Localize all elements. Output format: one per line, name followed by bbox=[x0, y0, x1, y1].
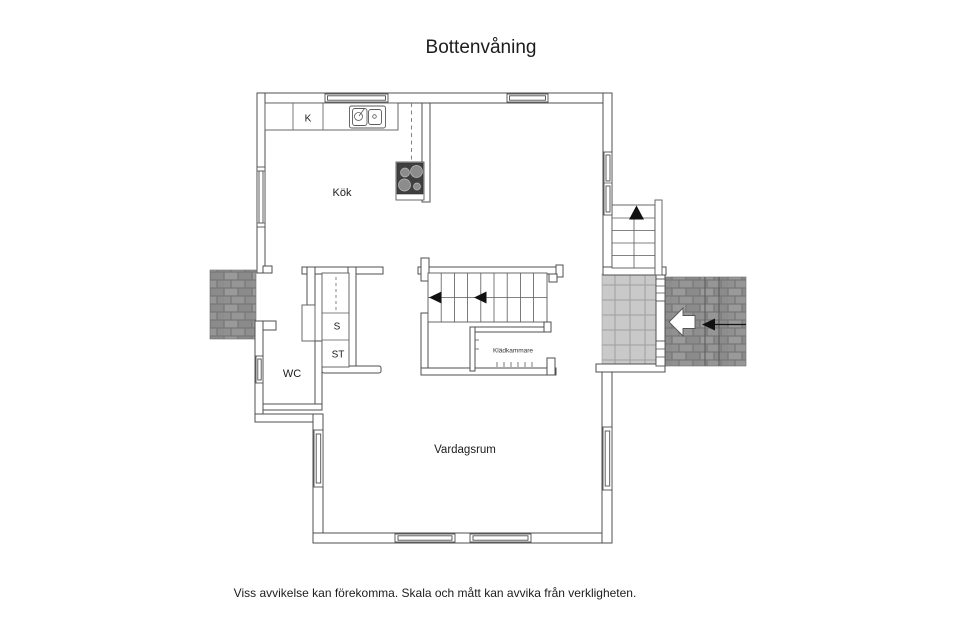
stove-icon bbox=[396, 162, 424, 200]
patio-left-bricks bbox=[210, 270, 256, 339]
floor-plan-drawing bbox=[0, 0, 960, 640]
wall-top bbox=[257, 93, 612, 103]
plan-title: Bottenvåning bbox=[426, 37, 537, 59]
wall-stairblock-bottom bbox=[421, 368, 556, 375]
wall-stair-tab-right bbox=[549, 274, 557, 282]
entry-porch-tiles bbox=[602, 274, 656, 364]
kladkammare-room bbox=[470, 322, 551, 371]
wall-entry-bottom bbox=[596, 364, 665, 372]
window-right-upper bbox=[604, 152, 612, 215]
wall-wc-left-tab bbox=[263, 321, 276, 330]
wall-bottom bbox=[313, 533, 612, 543]
room-label-kitchen: Kök bbox=[333, 187, 352, 199]
wall-kk-top bbox=[470, 327, 546, 332]
window-wc bbox=[256, 356, 263, 383]
window-bottom-left bbox=[395, 534, 455, 542]
room-label-fridge: K bbox=[305, 114, 312, 125]
window-livingroom-right bbox=[603, 427, 612, 490]
wall-closet-left bbox=[307, 267, 315, 305]
window-bottom-right bbox=[470, 534, 531, 542]
wall-kk-top-notch bbox=[544, 322, 551, 332]
floor-plan-page: Bottenvåning K Kök WC S ST Klädkammare V… bbox=[0, 0, 960, 640]
stair-railing bbox=[655, 200, 662, 275]
room-label-closet-s: S bbox=[334, 322, 341, 333]
wall-hall-tab bbox=[263, 266, 272, 273]
wall-stairblock-notch bbox=[547, 358, 555, 375]
window-top-hall bbox=[507, 94, 548, 102]
room-label-closet-st: ST bbox=[332, 350, 345, 361]
room-label-kladkammare: Klädkammare bbox=[493, 348, 533, 355]
wall-wc-right bbox=[315, 341, 322, 410]
window-entry-lower bbox=[656, 341, 665, 366]
kitchen-fixtures bbox=[265, 103, 424, 200]
sink-icon bbox=[350, 106, 386, 128]
room-label-wc: WC bbox=[283, 368, 301, 380]
staircase-main bbox=[428, 273, 547, 322]
window-top-kitchen bbox=[325, 94, 388, 102]
wall-wc-bottom bbox=[263, 404, 322, 410]
wc-door-leaf bbox=[302, 305, 315, 341]
wall-kk-left bbox=[470, 327, 475, 371]
window-kitchen-left bbox=[257, 167, 265, 227]
room-label-livingroom: Vardagsrum bbox=[434, 444, 496, 456]
disclaimer-text: Viss avvikelse kan förekomma. Skala och … bbox=[234, 586, 637, 600]
staircase-exterior bbox=[612, 200, 662, 275]
window-entry-upper bbox=[656, 279, 665, 301]
window-livingroom-left bbox=[314, 430, 323, 487]
wall-stairblock-left bbox=[421, 313, 428, 375]
